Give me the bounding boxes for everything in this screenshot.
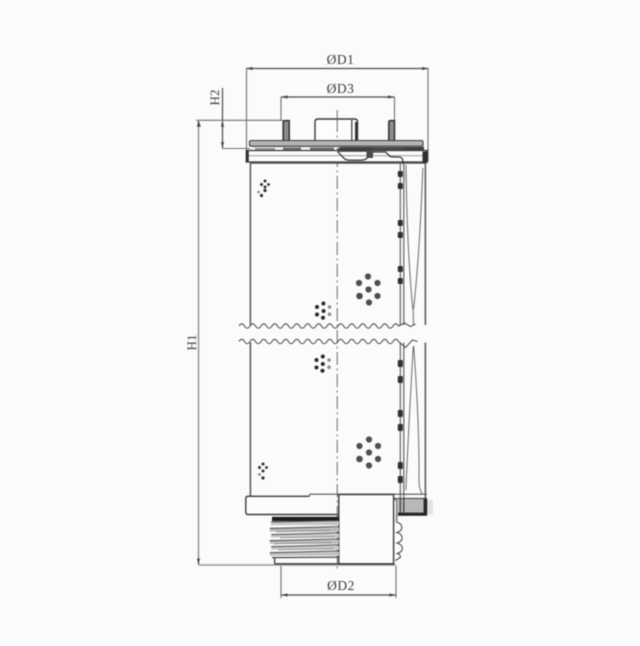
svg-text:H2: H2	[207, 90, 222, 106]
svg-text:ØD3: ØD3	[327, 81, 355, 96]
svg-text:H1: H1	[184, 335, 199, 351]
svg-text:ØD2: ØD2	[327, 578, 355, 593]
svg-text:ØD1: ØD1	[327, 52, 355, 67]
